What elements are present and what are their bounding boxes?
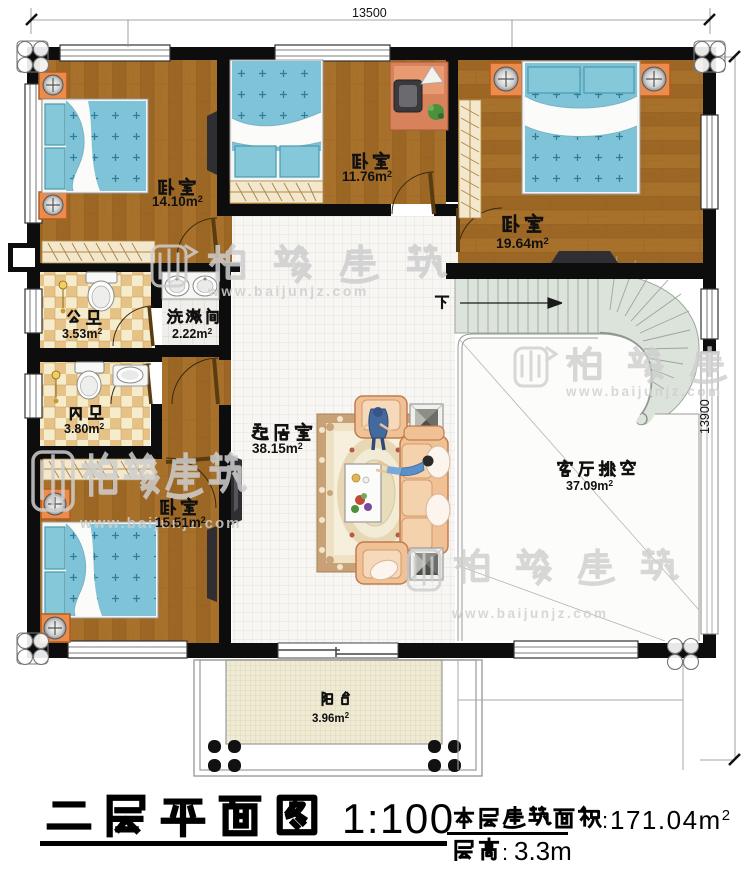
svg-text:15.51m2: 15.51m2 (155, 515, 206, 530)
svg-text:www.baijunjz.com: www.baijunjz.com (451, 606, 609, 621)
svg-text:1:100: 1:100 (342, 795, 455, 842)
svg-text::: : (502, 840, 508, 865)
svg-text:37.09m2: 37.09m2 (566, 478, 613, 493)
svg-text::: : (602, 808, 608, 833)
svg-text:13500: 13500 (352, 6, 387, 20)
svg-text:14.10m2: 14.10m2 (152, 194, 203, 209)
svg-text:2.22m2: 2.22m2 (172, 326, 212, 341)
svg-text:3.53m2: 3.53m2 (62, 326, 102, 341)
svg-text:www.baijunjz.com: www.baijunjz.com (565, 384, 723, 399)
svg-text:38.15m2: 38.15m2 (252, 441, 303, 456)
svg-text:19.64m2: 19.64m2 (496, 235, 549, 251)
svg-text:3.3m: 3.3m (514, 836, 572, 866)
svg-text:3.96m2: 3.96m2 (312, 711, 350, 725)
svg-text:www.baijunjz.com: www.baijunjz.com (207, 283, 369, 299)
svg-text:11.76m2: 11.76m2 (342, 169, 392, 184)
svg-text:13900: 13900 (698, 399, 712, 434)
svg-text:3.80m2: 3.80m2 (64, 421, 104, 436)
svg-text:171.04m2: 171.04m2 (610, 805, 732, 835)
